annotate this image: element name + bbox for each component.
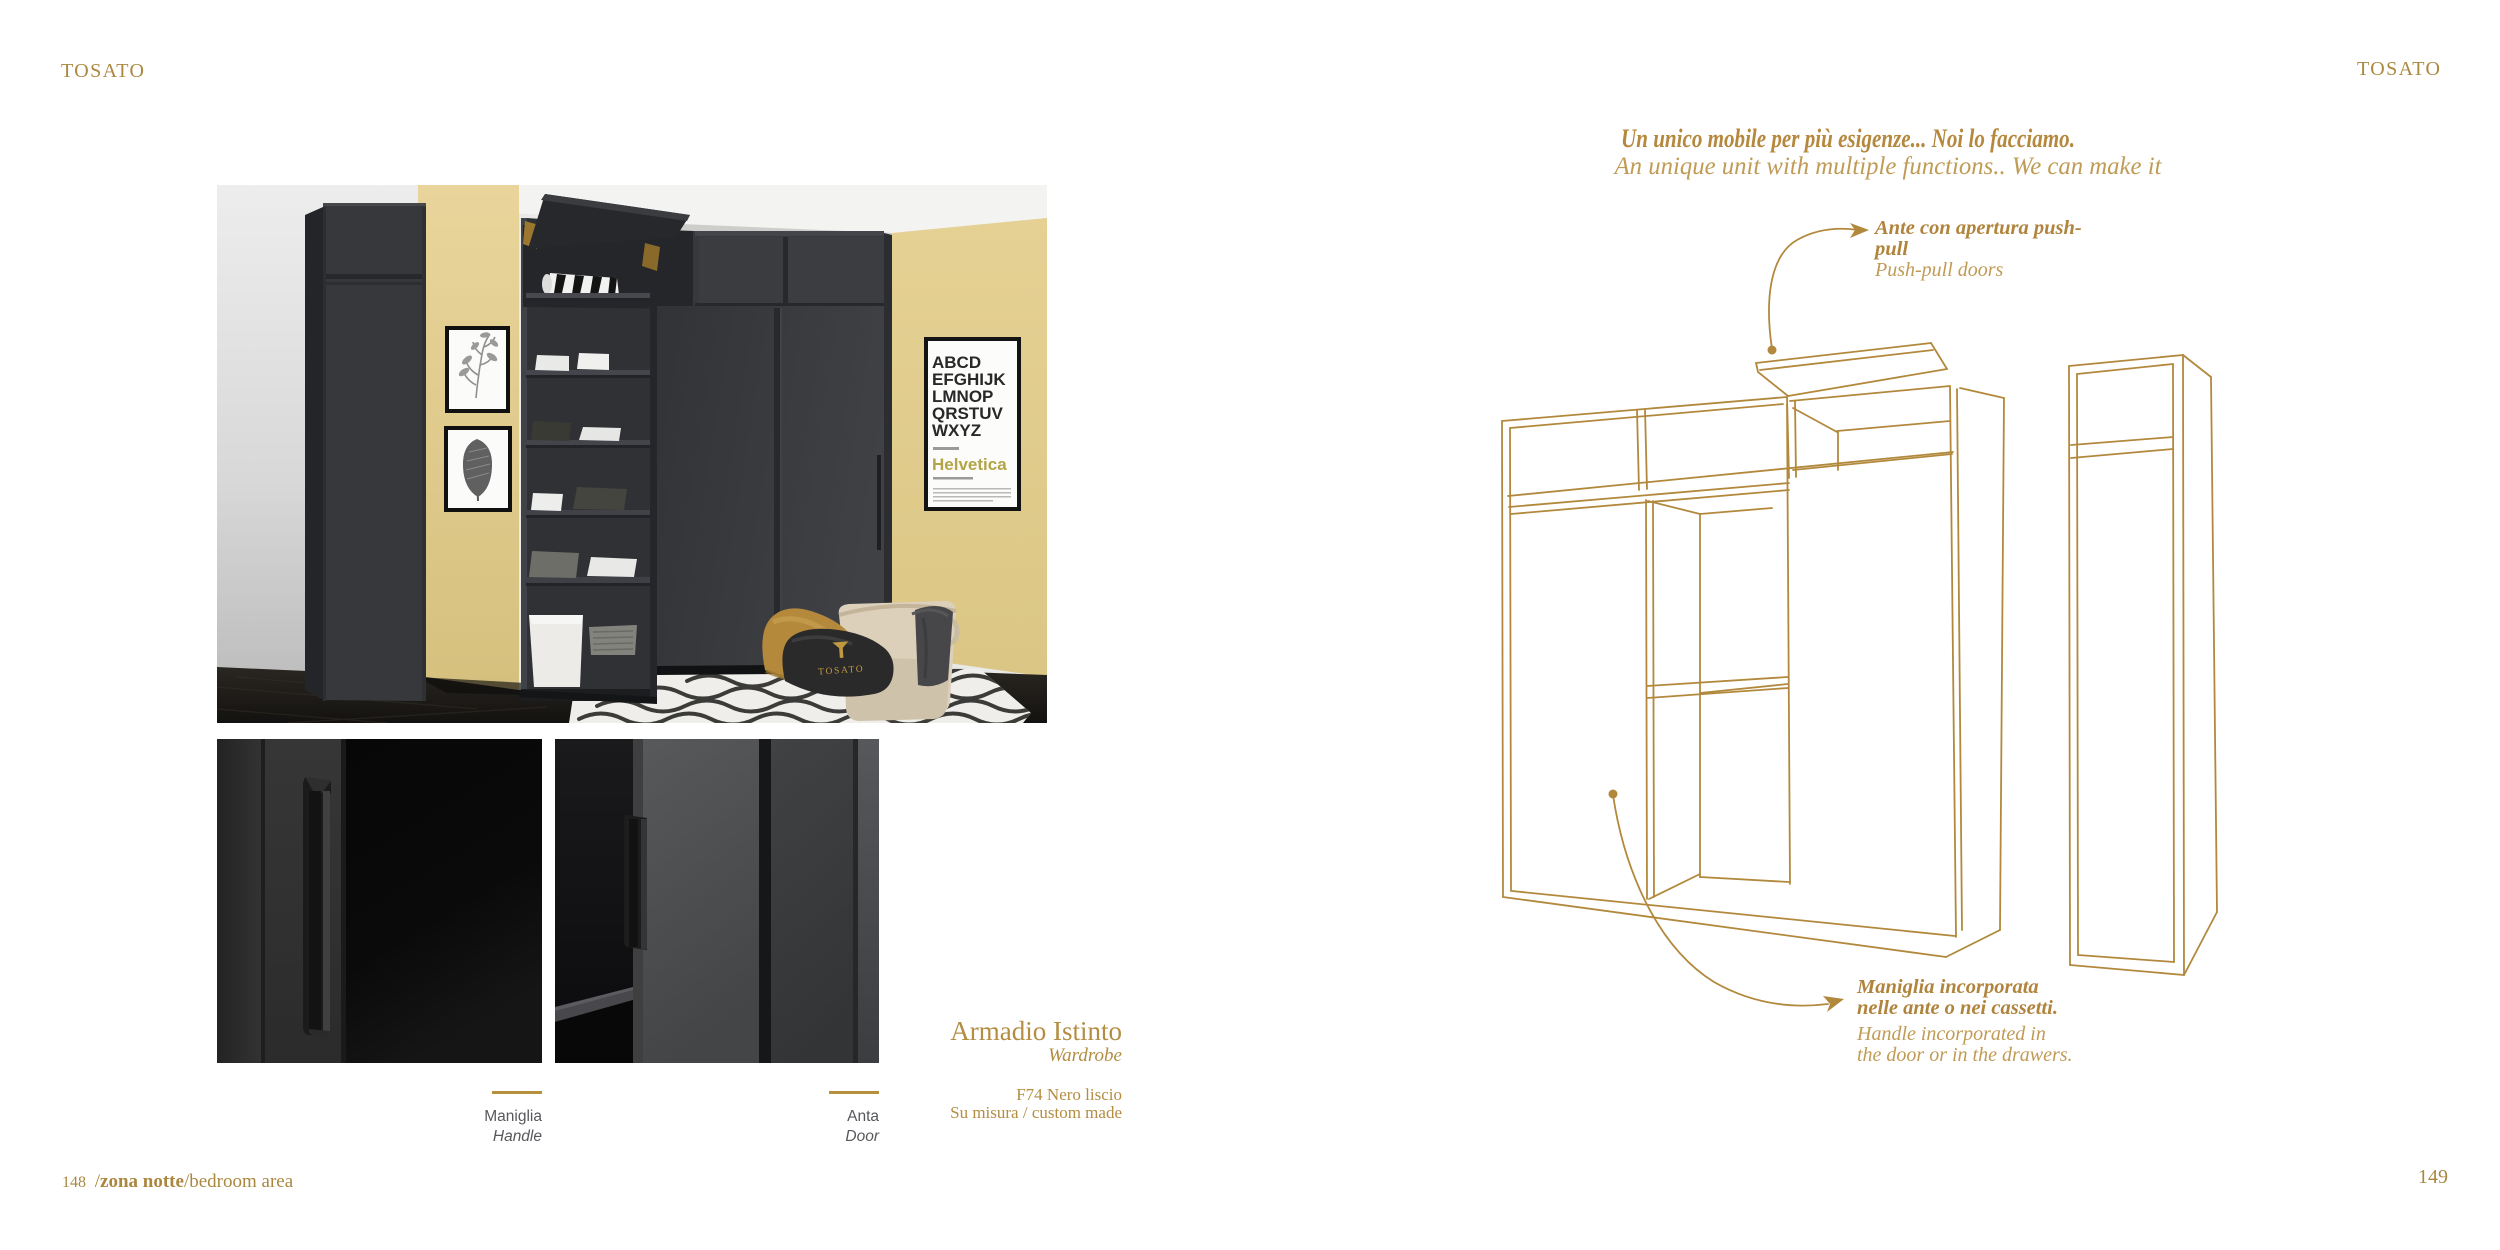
svg-text:WXYZ: WXYZ [932, 421, 981, 440]
svg-text:Helvetica: Helvetica [932, 455, 1007, 474]
